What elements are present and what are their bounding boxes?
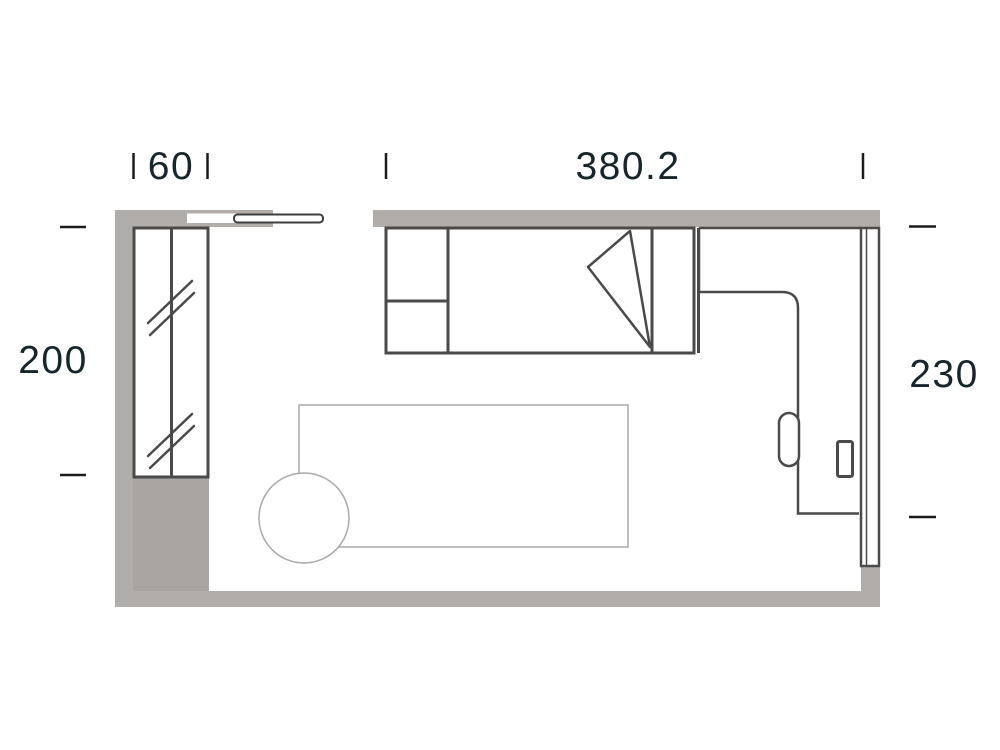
right-wall-panel[interactable] [861, 228, 879, 566]
corner-desk[interactable] [699, 228, 861, 514]
right-panel-body[interactable] [861, 228, 879, 566]
bed[interactable] [386, 228, 699, 353]
desk-chair-handle[interactable] [779, 413, 799, 466]
wall-top-right-segment [373, 210, 880, 227]
desk-accessory[interactable] [838, 442, 853, 477]
dim-label-right-height: 230 [909, 353, 979, 396]
wall-left [115, 210, 133, 607]
dimension-top-width: 380.2 [386, 145, 863, 188]
dim-label-top-width: 380.2 [575, 145, 680, 188]
dimension-left-height: 200 [18, 227, 88, 475]
dimension-right-height: 230 [909, 227, 979, 518]
dimension-wardrobe-width: 60 [134, 145, 208, 188]
sliding-door-panel[interactable] [234, 215, 323, 223]
dim-label-left-height: 200 [18, 339, 88, 382]
wardrobe[interactable] [134, 228, 208, 477]
floor-plan-canvas: 60 380.2 200 230 [0, 0, 1000, 750]
round-stool[interactable] [259, 473, 349, 563]
desk-inner-edge[interactable] [699, 228, 859, 514]
dim-label-wardrobe-width: 60 [148, 145, 194, 188]
wardrobe-niche-fill [133, 478, 209, 591]
wall-right-bottom-block [861, 566, 880, 596]
wall-bottom [115, 591, 880, 607]
